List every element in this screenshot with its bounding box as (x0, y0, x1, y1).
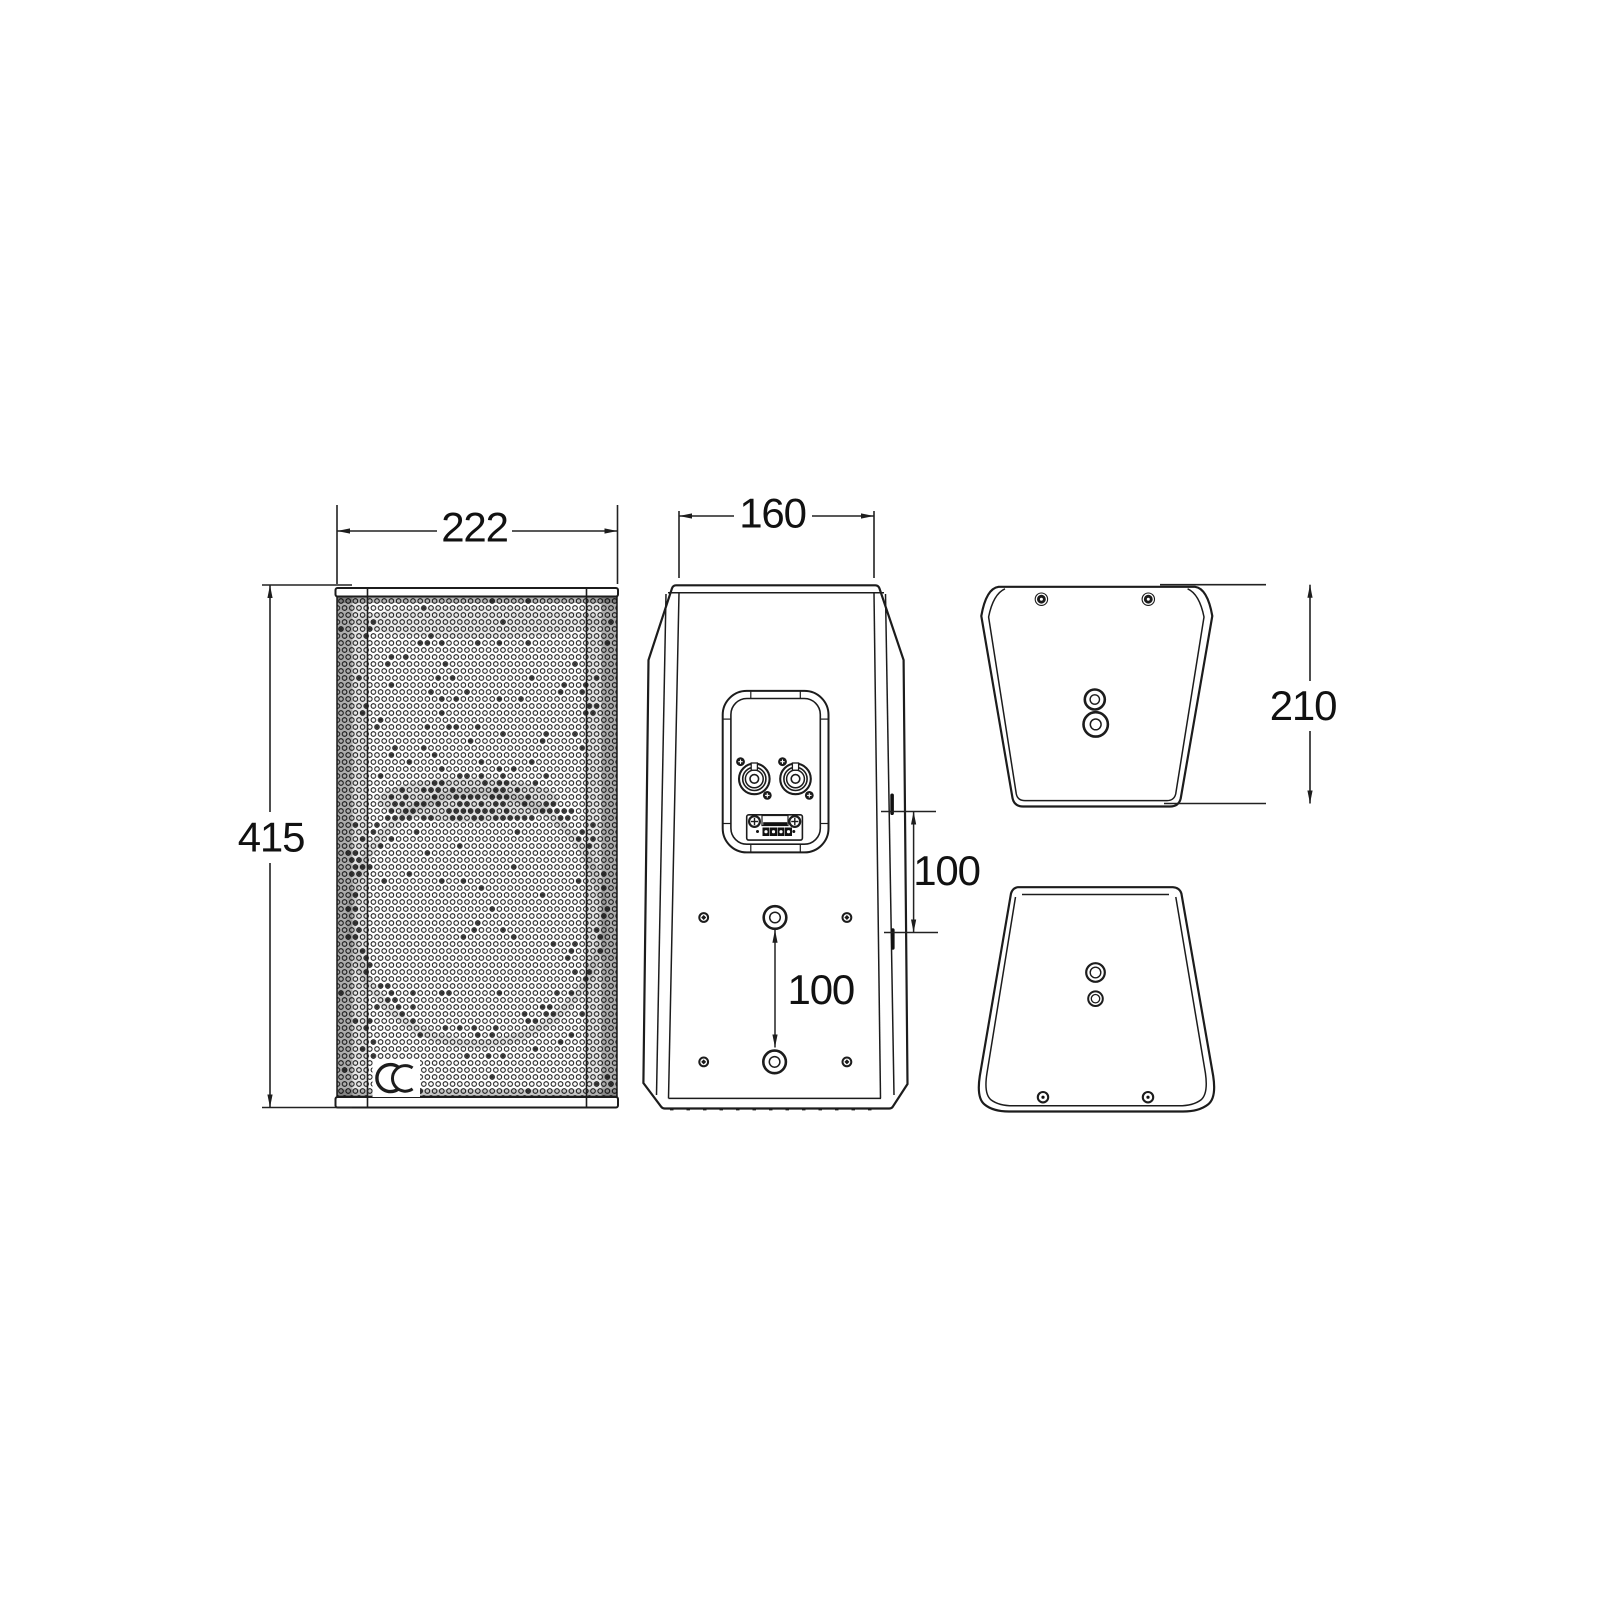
svg-text:100: 100 (913, 847, 979, 894)
svg-text:222: 222 (441, 504, 507, 551)
svg-text:415: 415 (238, 814, 304, 861)
svg-text:100: 100 (788, 966, 854, 1013)
svg-text:160: 160 (739, 490, 805, 537)
svg-text:210: 210 (1270, 682, 1336, 729)
